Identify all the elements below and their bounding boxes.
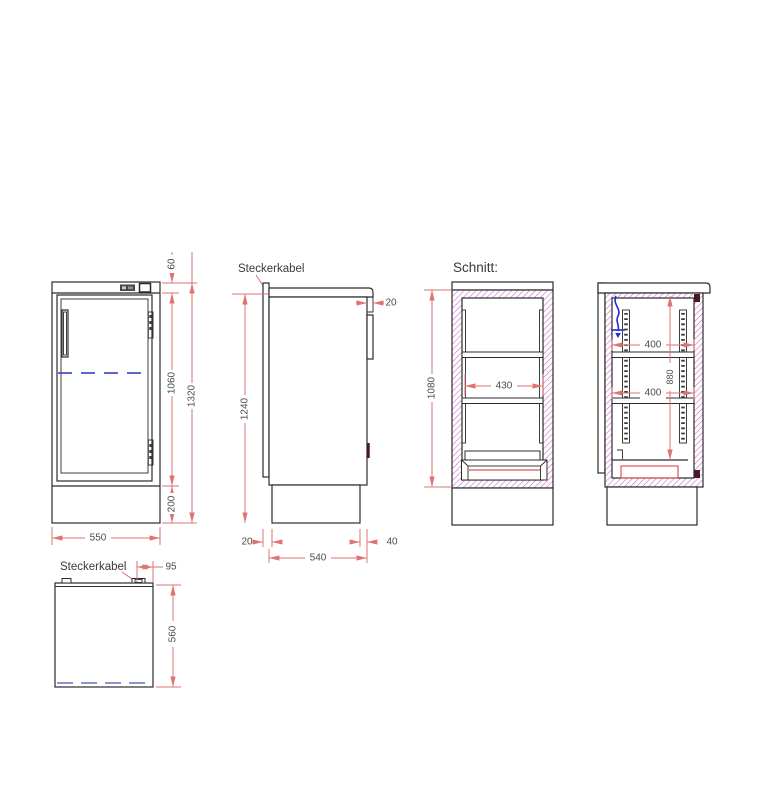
dim-base-height: 200 bbox=[167, 495, 178, 512]
base-pedestal bbox=[607, 487, 697, 525]
dim-cable-offset: 95 bbox=[165, 562, 177, 573]
back-panel bbox=[263, 283, 269, 477]
dim-width: 550 bbox=[90, 533, 107, 544]
body-outline bbox=[269, 297, 367, 485]
dim-total-height: 1320 bbox=[187, 384, 198, 407]
side-view: Steckerkabel 1240 20 20 4 bbox=[232, 263, 398, 564]
dim-depth: 560 bbox=[168, 625, 179, 642]
top-lid bbox=[598, 283, 710, 293]
section-title: Schnitt: bbox=[453, 260, 498, 275]
dim-shelf-depth-upper: 400 bbox=[645, 340, 662, 351]
base-pedestal bbox=[452, 488, 553, 525]
drawer-box bbox=[462, 451, 548, 480]
section-side-view: 400 400 880 bbox=[598, 283, 710, 525]
dim-top-panel: 60 bbox=[167, 258, 178, 270]
cable-label: Steckerkabel bbox=[60, 561, 126, 573]
display-segment bbox=[128, 286, 133, 289]
top-view: Steckerkabel 95 560 bbox=[55, 561, 181, 687]
cad-drawing-canvas: 60 1060 1320 200 550 Steckerkabel bbox=[0, 0, 761, 800]
display-segment bbox=[122, 286, 126, 289]
top-lid bbox=[452, 282, 553, 290]
dim-shelf-depth-lower: 400 bbox=[645, 388, 662, 399]
dim-base-front-inset: 40 bbox=[386, 537, 398, 548]
shelf-lower bbox=[462, 398, 543, 404]
cable-label: Steckerkabel bbox=[238, 263, 304, 275]
dim-rail-height: 880 bbox=[665, 369, 675, 384]
door-top-edge bbox=[367, 297, 373, 312]
dim-base-back-inset: 20 bbox=[241, 537, 253, 548]
lock-mark bbox=[367, 443, 370, 458]
dim-interior-height: 1080 bbox=[427, 376, 438, 399]
shelf-upper bbox=[612, 352, 694, 358]
top-lid bbox=[269, 288, 373, 297]
section-front-view: Schnitt: 1080 430 bbox=[424, 260, 553, 525]
dim-body-height: 1240 bbox=[240, 397, 251, 420]
back-panel bbox=[598, 283, 605, 473]
door-handle bbox=[62, 310, 68, 357]
drawing-page: 60 1060 1320 200 550 Steckerkabel bbox=[0, 0, 761, 800]
door-handle-side bbox=[367, 315, 373, 359]
cabinet-top-outline bbox=[55, 583, 153, 687]
hinge-bottom-mark bbox=[694, 470, 700, 478]
dim-door-thickness: 20 bbox=[385, 298, 397, 309]
front-view: 60 1060 1320 200 550 bbox=[52, 252, 198, 545]
shelf-upper bbox=[462, 352, 543, 358]
base-pedestal bbox=[272, 485, 360, 523]
dim-door-height: 1060 bbox=[167, 371, 178, 394]
dim-depth: 540 bbox=[310, 553, 327, 564]
tab-left bbox=[62, 579, 71, 584]
hinge-top-mark bbox=[694, 294, 700, 302]
dim-interior-width: 430 bbox=[496, 381, 513, 392]
